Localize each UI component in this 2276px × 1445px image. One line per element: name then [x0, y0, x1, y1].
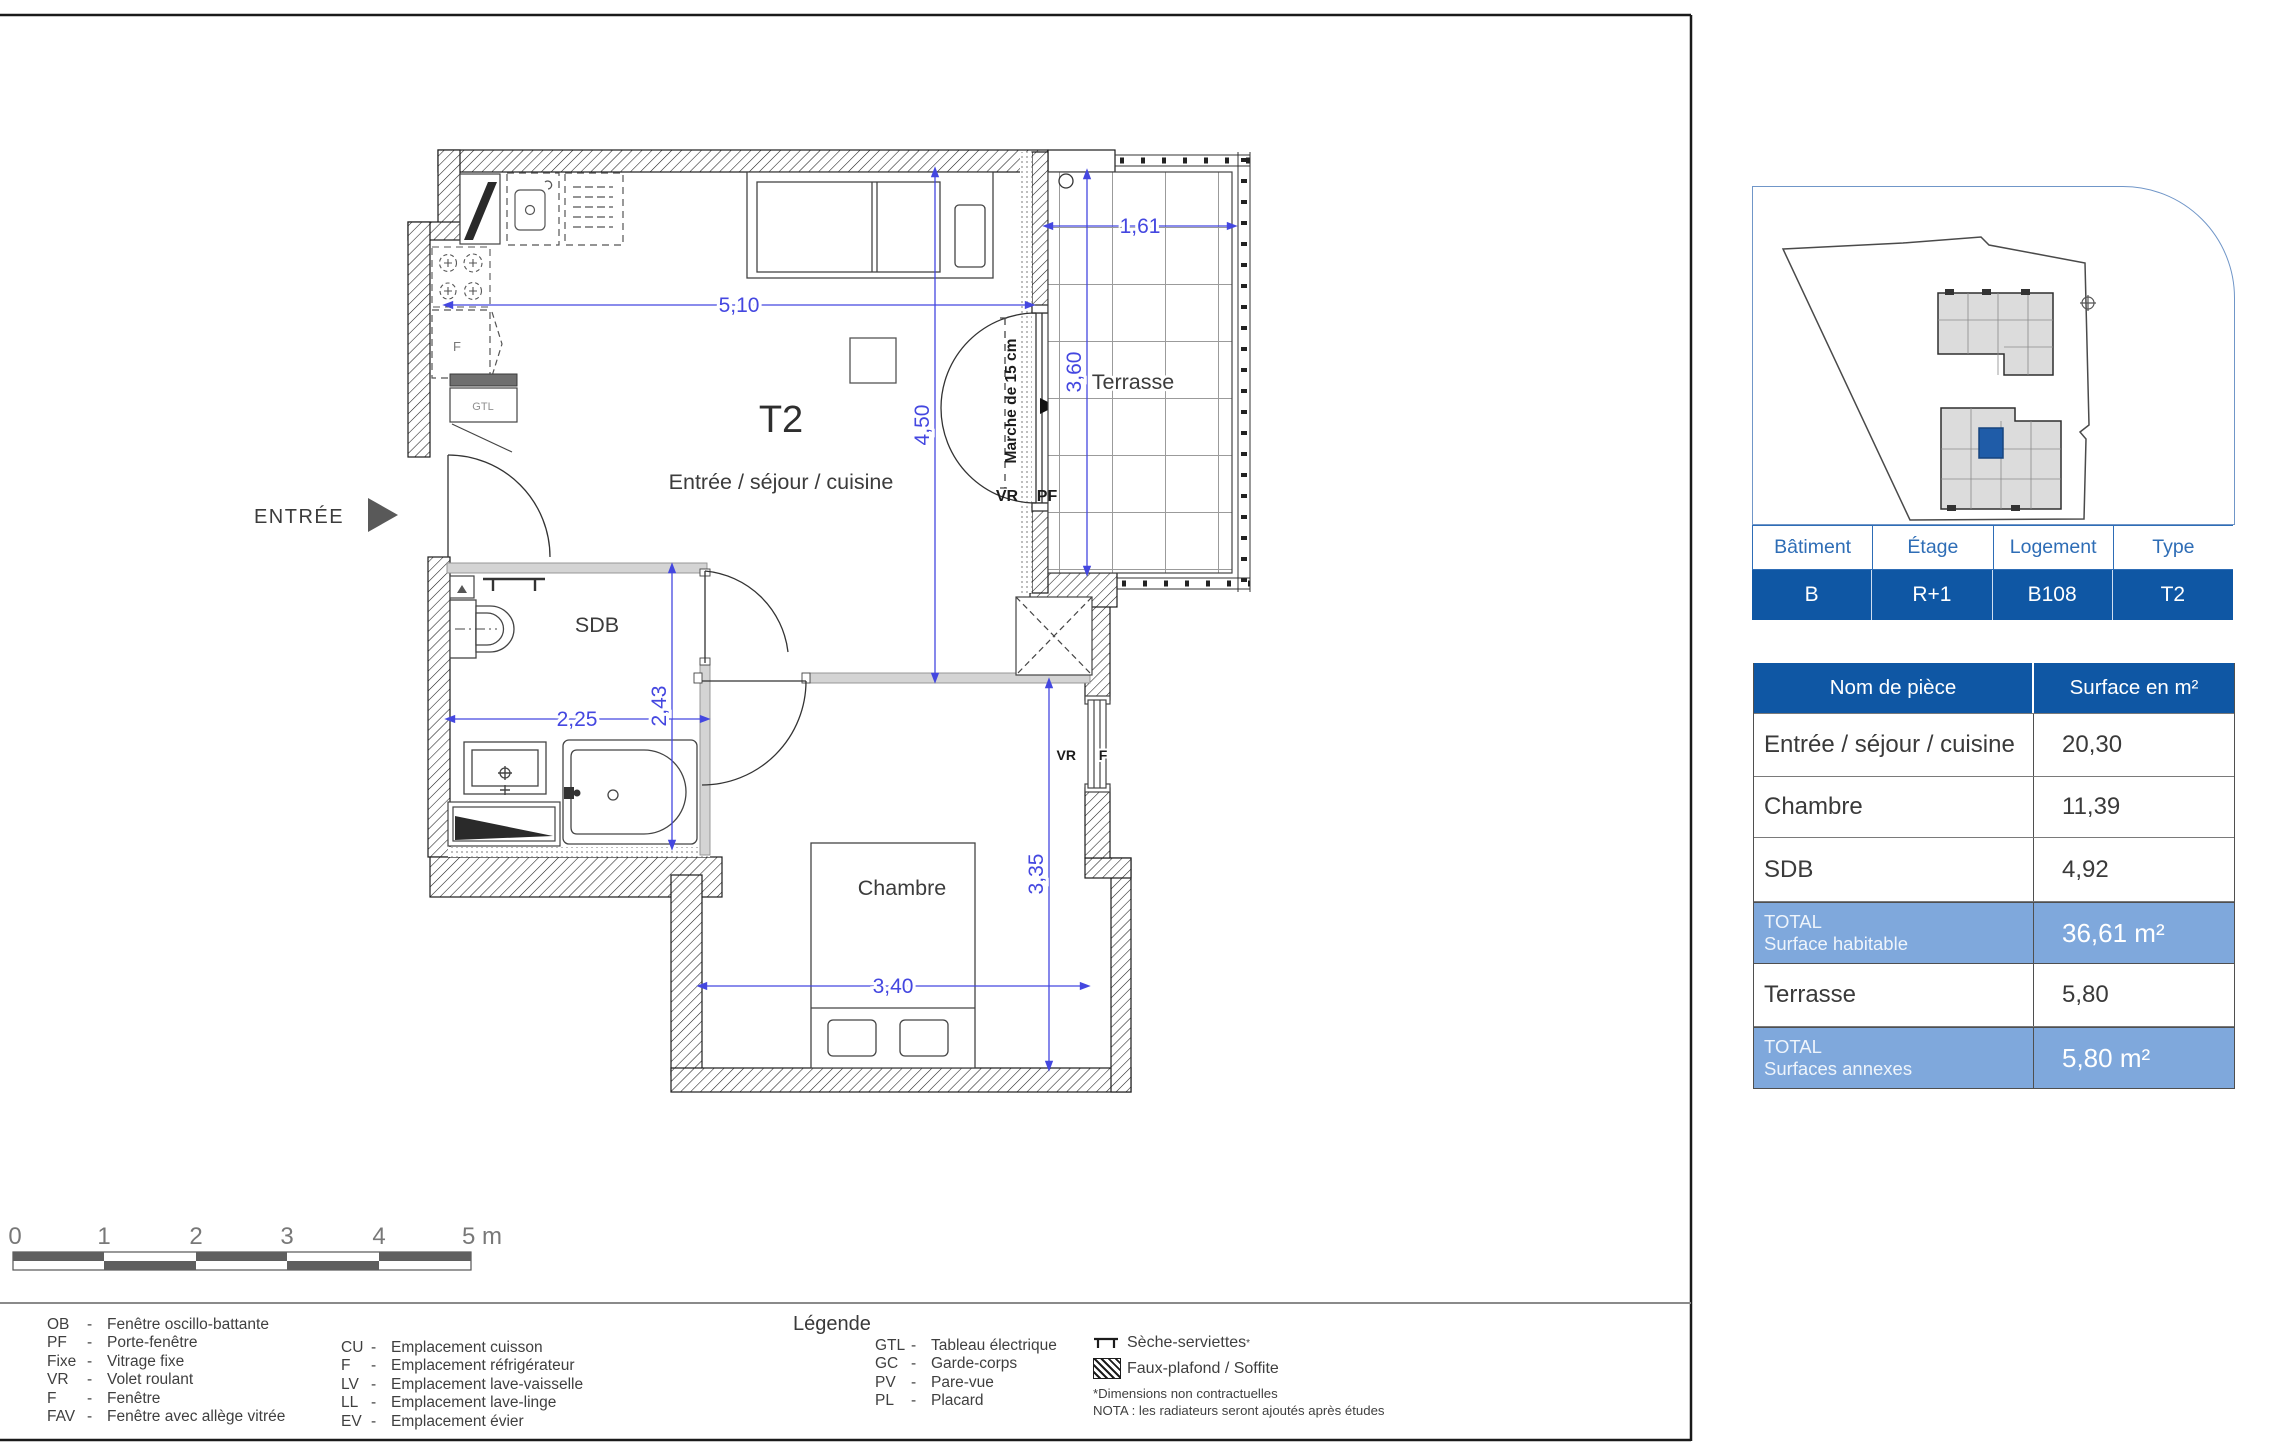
legend-abbr: F: [47, 1390, 87, 1408]
legend-column-misc: GTL-Tableau électrique GC-Garde-corps PV…: [875, 1337, 1057, 1411]
surface-header-room: Nom de pièce: [1754, 663, 2034, 713]
legend-desc: Fenêtre oscillo-battante: [107, 1316, 269, 1334]
gtl-label: GTL: [472, 401, 493, 413]
room-name: Terrasse: [1754, 964, 2034, 1026]
scale-tick-5: 5 m: [462, 1223, 502, 1250]
surface-header-area: Surface en m²: [2034, 663, 2234, 713]
dishwasher-unit: [565, 173, 623, 245]
total-sublabel: Surfaces annexes: [1764, 1058, 1912, 1080]
total-habitable-row: TOTAL Surface habitable 36,61 m²: [1754, 902, 2234, 964]
f-label-bedroom: F: [1099, 747, 1108, 763]
table-row: Chambre 11,39: [1754, 777, 2234, 838]
pillow: [828, 1020, 876, 1056]
legend-abbr: PF: [47, 1334, 87, 1352]
unit-header-type: Type: [2113, 525, 2233, 570]
unit-type-label: T2: [759, 399, 803, 441]
legend-desc: Pare-vue: [931, 1374, 994, 1392]
total-value: 5,80 m²: [2034, 1028, 2234, 1088]
pf-label-terrace: PF: [1037, 488, 1058, 505]
fridge-label: F: [453, 339, 461, 354]
floor-plan-drawing: F GTL: [0, 0, 1693, 1445]
entry-label: ENTRÉE: [254, 505, 344, 528]
closet: [1016, 597, 1092, 675]
legend-desc: Emplacement réfrigérateur: [391, 1357, 575, 1375]
dim-living-height: 4,50: [911, 405, 934, 446]
room-surface: 20,30: [2034, 714, 2234, 776]
living-room-label: Entrée / séjour / cuisine: [669, 470, 894, 494]
room-name: Chambre: [1754, 777, 2034, 837]
legend-desc: Sèche-serviettes: [1127, 1334, 1246, 1352]
step-note-label: Marche de 15 cm: [1003, 339, 1020, 464]
room-surface: 4,92: [2034, 838, 2234, 901]
cooktop-unit: [432, 247, 490, 307]
sofa: [747, 172, 993, 278]
legend-abbr: VR: [47, 1371, 87, 1389]
dim-bedroom-width: 3,40: [873, 975, 914, 998]
legend-abbr: CU: [341, 1339, 371, 1357]
bathtub: [563, 740, 697, 844]
legend-item: OB-Fenêtre oscillo-battante: [47, 1316, 285, 1334]
dim-bathroom-width: 2,25: [557, 708, 598, 731]
highlighted-unit: [1979, 428, 2003, 458]
total-label: TOTAL: [1764, 911, 1822, 933]
legend-title: Légende: [793, 1313, 871, 1336]
floorplan-sheet: F GTL: [0, 0, 2276, 1445]
unit-header-logement: Logement: [1993, 525, 2113, 570]
legend-item: CU-Emplacement cuisson: [341, 1339, 583, 1357]
dim-terrace-height: 3,60: [1063, 352, 1086, 393]
site-plan: [1752, 186, 2235, 525]
legend-item: GTL-Tableau électrique: [875, 1337, 1057, 1355]
dim-bathroom-height: 2,43: [648, 686, 671, 727]
legend-desc: Fenêtre avec allège vitrée: [107, 1408, 285, 1426]
table-row: Terrasse 5,80: [1754, 964, 2234, 1027]
unit-value-batiment: B: [1752, 570, 1872, 620]
dim-terrace-width: 1,61: [1120, 215, 1161, 238]
side-table: [850, 338, 896, 383]
legend-item: GC-Garde-corps: [875, 1355, 1057, 1373]
washbasin: [464, 742, 546, 795]
unit-header-etage: Étage: [1872, 525, 1992, 570]
building-a-footprint: [1938, 289, 2053, 375]
electrical-panel: [450, 374, 517, 452]
north-symbol-icon: [2080, 295, 2096, 311]
scale-tick-1: 1: [97, 1223, 110, 1250]
room-surface: 5,80: [2034, 964, 2234, 1026]
legend-desc: Tableau électrique: [931, 1337, 1057, 1355]
legend-abbr: FAV: [47, 1408, 87, 1426]
legend-item: PF-Porte-fenêtre: [47, 1334, 285, 1352]
legend-desc: Vitrage fixe: [107, 1353, 184, 1371]
bedroom-label: Chambre: [858, 876, 946, 900]
bedroom-door: [702, 681, 806, 785]
legend-column-appliances: CU-Emplacement cuisson F-Emplacement réf…: [341, 1339, 583, 1431]
legend-column-icons: Sèche-serviettes* Faux-plafond / Soffite…: [1093, 1334, 1513, 1419]
unit-value-type: T2: [2113, 570, 2233, 620]
table-row: SDB 4,92: [1754, 838, 2234, 902]
legend-abbr: Fixe: [47, 1353, 87, 1371]
site-plan-drawing: [1753, 187, 2234, 524]
unit-value-logement: B108: [1993, 570, 2113, 620]
wall-cabinet: [450, 576, 474, 598]
bedroom-window: [1085, 696, 1110, 792]
toilet: [450, 600, 514, 658]
legend-abbr: LV: [341, 1376, 371, 1394]
legend-item: F-Fenêtre: [47, 1390, 285, 1408]
legend-abbr: F: [341, 1357, 371, 1375]
scale-tick-0: 0: [8, 1223, 21, 1250]
bathroom-label: SDB: [575, 613, 619, 637]
scale-tick-4: 4: [372, 1223, 385, 1250]
legend-desc: Fenêtre: [107, 1390, 160, 1408]
legend-item: LL-Emplacement lave-linge: [341, 1394, 583, 1412]
legend-desc: Volet roulant: [107, 1371, 193, 1389]
terrace-label: Terrasse: [1092, 370, 1174, 394]
legend-item: VR-Volet roulant: [47, 1371, 285, 1389]
legend-desc: Placard: [931, 1392, 984, 1410]
legend-desc: Faux-plafond / Soffite: [1127, 1360, 1279, 1378]
legend-column-windows: OB-Fenêtre oscillo-battante PF-Porte-fen…: [47, 1316, 285, 1426]
fridge-unit: [432, 310, 502, 378]
dim-bedroom-height: 3,35: [1025, 854, 1048, 895]
total-value: 36,61 m²: [2034, 903, 2234, 963]
legend-item: Fixe-Vitrage fixe: [47, 1353, 285, 1371]
surface-table: Nom de pièce Surface en m² Entrée / séjo…: [1753, 663, 2235, 1089]
unit-header-batiment: Bâtiment: [1752, 525, 1872, 570]
legend-abbr: EV: [341, 1413, 371, 1431]
legend-abbr: PL: [875, 1392, 911, 1410]
towel-dryer-icon: [1093, 1336, 1127, 1350]
legend-item: PV-Pare-vue: [875, 1374, 1057, 1392]
total-annexes-row: TOTAL Surfaces annexes 5,80 m²: [1754, 1027, 2234, 1088]
vr-label-bedroom: VR: [1057, 747, 1076, 763]
legend-item: PL-Placard: [875, 1392, 1057, 1410]
pillow: [900, 1020, 948, 1056]
total-sublabel: Surface habitable: [1764, 933, 1908, 955]
surface-table-header: Nom de pièce Surface en m²: [1754, 663, 2234, 714]
bathroom-window: [448, 802, 560, 846]
legend-item: Faux-plafond / Soffite: [1093, 1358, 1513, 1379]
legend-abbr: GC: [875, 1355, 911, 1373]
legend-item: F-Emplacement réfrigérateur: [341, 1357, 583, 1375]
legend-desc: Emplacement cuisson: [391, 1339, 543, 1357]
legend-note-nota: NOTA : les radiateurs seront ajoutés apr…: [1093, 1402, 1513, 1419]
legend-abbr: LL: [341, 1394, 371, 1412]
dim-living-width: 5,10: [719, 294, 760, 317]
unit-info-table: Bâtiment Étage Logement Type B R+1 B108 …: [1752, 525, 2233, 620]
faux-plafond-icon: [1093, 1358, 1127, 1379]
legend-desc: Garde-corps: [931, 1355, 1017, 1373]
legend-item: LV-Emplacement lave-vaisselle: [341, 1376, 583, 1394]
entry-door: [448, 455, 550, 557]
legend-desc: Emplacement lave-vaisselle: [391, 1376, 583, 1394]
entry-arrow-icon: [368, 498, 398, 532]
legend-abbr: GTL: [875, 1337, 911, 1355]
kitchen-sink-unit: [507, 173, 559, 245]
legend-desc: Emplacement lave-linge: [391, 1394, 556, 1412]
legend-desc: Porte-fenêtre: [107, 1334, 197, 1352]
scale-tick-3: 3: [280, 1223, 293, 1250]
kitchen-corner-unit: [460, 174, 500, 244]
total-label: TOTAL: [1764, 1036, 1822, 1058]
scale-bar: 0 1 2 3 4 5 m: [8, 1223, 502, 1270]
legend-abbr: OB: [47, 1316, 87, 1334]
room-surface: 11,39: [2034, 777, 2234, 837]
towel-dryer-symbol: [483, 579, 545, 591]
legend-desc: Emplacement évier: [391, 1413, 524, 1431]
legend-item: EV-Emplacement évier: [341, 1413, 583, 1431]
bathroom-door: [705, 571, 788, 663]
legend-abbr: PV: [875, 1374, 911, 1392]
drain-icon: [1059, 174, 1073, 188]
room-name: SDB: [1754, 838, 2034, 901]
legend-item: Sèche-serviettes*: [1093, 1334, 1513, 1352]
table-row: Entrée / séjour / cuisine 20,30: [1754, 714, 2234, 777]
building-b-footprint: [1941, 408, 2061, 511]
legend-note-dimensions: *Dimensions non contractuelles: [1093, 1385, 1513, 1402]
vr-label-terrace: VR: [996, 488, 1019, 505]
scale-tick-2: 2: [189, 1223, 202, 1250]
unit-value-etage: R+1: [1872, 570, 1992, 620]
legend-item: FAV-Fenêtre avec allège vitrée: [47, 1408, 285, 1426]
room-name: Entrée / séjour / cuisine: [1754, 714, 2034, 776]
